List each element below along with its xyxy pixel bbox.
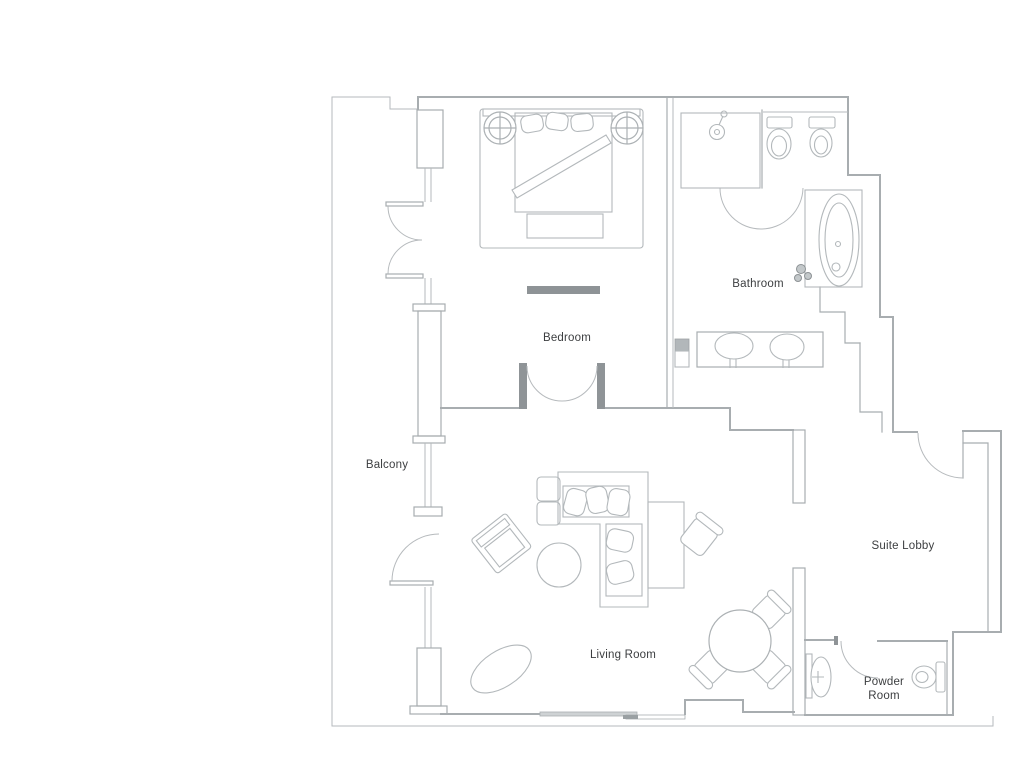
bed-runner — [512, 135, 611, 198]
pillow — [562, 487, 589, 518]
room-label-balcony: Balcony — [366, 459, 408, 471]
ottoman — [537, 477, 560, 501]
pillow — [605, 528, 635, 554]
room-label-suite-lobby: Suite Lobby — [872, 540, 935, 552]
wall-outline — [332, 97, 1001, 726]
structural-column — [675, 339, 689, 351]
bath-corridor-wall — [860, 343, 882, 432]
pillar-base — [410, 706, 447, 714]
balcony-door-lower-arc — [392, 534, 439, 581]
powder-door-jamb — [834, 636, 838, 645]
powder-door-arc — [841, 641, 878, 678]
bedroom-french-door-arcs — [527, 366, 597, 401]
pillar — [418, 311, 441, 436]
pedestal-sink-icon — [811, 657, 831, 697]
door-jamb-right — [597, 363, 605, 409]
window-glazing — [425, 168, 431, 202]
bidet-icon — [809, 117, 835, 157]
lobby-inner-wall-line — [963, 443, 988, 632]
double-vanity — [697, 332, 823, 368]
coffee-table — [537, 543, 581, 587]
room-label-powder-room-line2: Room — [868, 690, 899, 702]
desk — [648, 502, 684, 588]
window-glazing — [425, 443, 431, 507]
pillow — [585, 485, 611, 515]
sliding-door-panel — [540, 712, 637, 716]
shower-wc-door-arcs — [720, 188, 803, 229]
sofa-pillows — [562, 485, 635, 586]
foot-bench — [527, 214, 603, 238]
column-base — [675, 351, 689, 367]
window-glazing — [425, 278, 431, 304]
plant-icon — [795, 265, 812, 282]
room-label-powder-room-line1: Powder — [864, 676, 904, 688]
door-stub — [386, 202, 423, 206]
bedroom-furniture — [480, 109, 643, 294]
ottoman — [537, 502, 560, 525]
balcony-double-door-upper-arcs — [388, 206, 422, 274]
tv-console — [527, 286, 600, 294]
door-jamb-left — [519, 363, 527, 409]
door-stub — [390, 581, 433, 585]
door-stub — [386, 274, 423, 278]
living-south-step — [685, 700, 794, 714]
living-lobby-wall-lower — [793, 568, 805, 715]
perimeter-wall-lobby — [805, 431, 1001, 715]
sink-basin — [770, 334, 804, 360]
pillar — [417, 110, 443, 168]
balcony-wall-assembly — [386, 110, 447, 714]
pillow — [605, 559, 635, 586]
living-room-furniture — [463, 472, 793, 703]
armchair — [471, 513, 532, 574]
pillar-cap — [413, 436, 445, 443]
sink-basin — [715, 333, 753, 359]
bathroom-fixtures — [675, 111, 862, 368]
bed-pillows — [520, 112, 594, 134]
bedroom-south-wall-right — [605, 408, 793, 430]
powder-toilet-icon — [912, 662, 945, 692]
tub-nook-jog — [820, 287, 860, 343]
area-rug — [463, 635, 540, 702]
pillar — [417, 648, 441, 706]
pillow — [606, 487, 631, 516]
living-lobby-wall-upper — [793, 430, 805, 503]
room-label-bedroom: Bedroom — [543, 332, 591, 344]
nightstand-right — [611, 112, 643, 144]
room-labels: Balcony Bedroom Bathroom Living Room Sui… — [366, 278, 935, 702]
bathtub-icon — [819, 194, 859, 286]
pillow — [520, 113, 545, 134]
round-dining-table — [709, 610, 771, 672]
room-label-living-room: Living Room — [590, 649, 656, 661]
floor-plan-svg: Balcony Bedroom Bathroom Living Room Sui… — [0, 0, 1024, 768]
room-label-bathroom: Bathroom — [732, 278, 783, 290]
nightstand-left — [484, 112, 516, 144]
window-glazing — [425, 587, 431, 648]
floorplan-canvas: Balcony Bedroom Bathroom Living Room Sui… — [0, 0, 1024, 768]
pillar-cap — [413, 304, 445, 311]
pillow — [570, 113, 594, 132]
pillow — [545, 112, 569, 132]
suite-entry-door-arc — [918, 433, 963, 478]
shower-head-icon — [710, 111, 728, 140]
dining-set — [687, 588, 792, 690]
toilet-icon — [767, 117, 792, 159]
pillar-cap — [414, 507, 442, 516]
shower-stall — [681, 113, 760, 188]
sliding-door-handle — [623, 715, 638, 719]
